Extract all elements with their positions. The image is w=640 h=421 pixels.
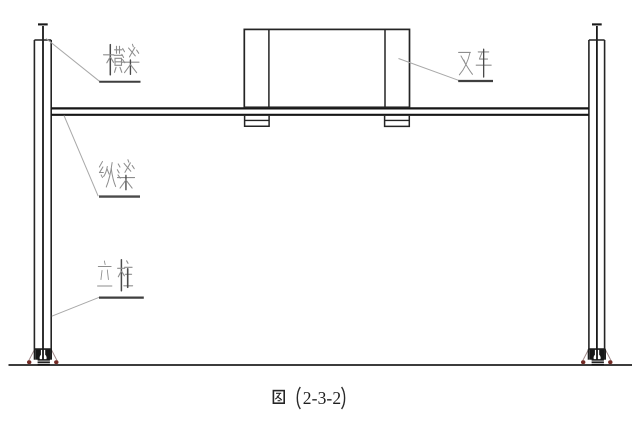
svg-text:2-3-2: 2-3-2 xyxy=(303,388,341,408)
